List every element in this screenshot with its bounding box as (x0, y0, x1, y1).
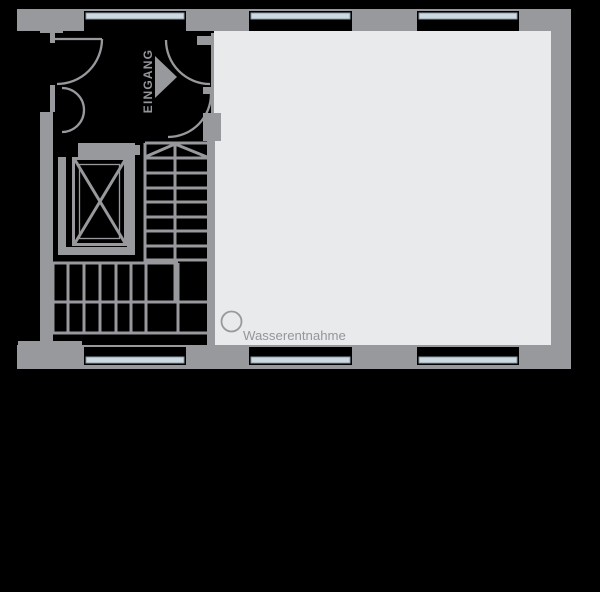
main-room (214, 31, 551, 347)
water-extraction-label: Wasserentnahme (243, 328, 346, 343)
window-icon (86, 357, 184, 363)
window-icon (419, 357, 517, 363)
window-icon (251, 357, 350, 363)
floor-plan-canvas: EINGANG Wasserentnahme (0, 0, 600, 592)
window-icon (419, 13, 517, 19)
window-icon (251, 13, 350, 19)
window-icon (86, 13, 184, 19)
floor-plan-page: EINGANG Wasserentnahme (0, 0, 600, 592)
entrance-label: EINGANG (141, 49, 155, 113)
